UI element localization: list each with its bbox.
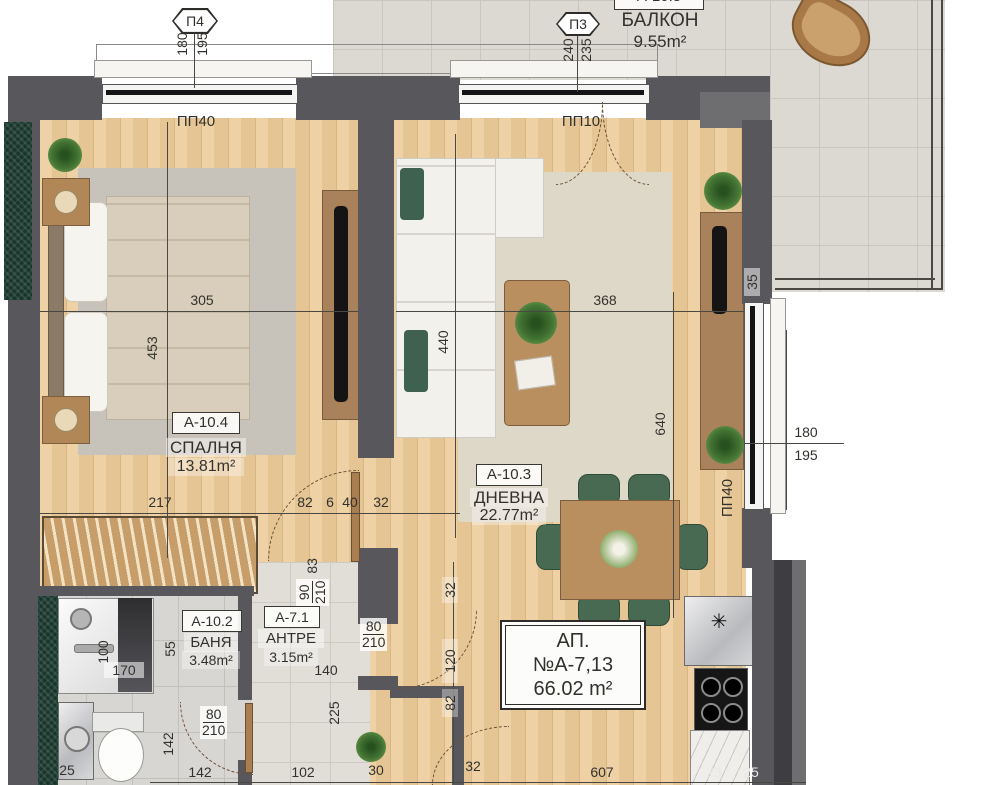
living-window-sill: [450, 60, 658, 78]
bathroom-door-leaf: [245, 703, 253, 773]
dim-hall-door: 80 210: [360, 618, 387, 651]
living-id: А-10.3: [476, 464, 542, 486]
coffee-table-books: [514, 356, 556, 391]
dim-p4-a: 180: [174, 24, 190, 64]
balcony-name: БАЛКОН: [608, 10, 712, 31]
dim-kchain-82: 82: [442, 689, 458, 717]
wall-kitchen-1: [752, 560, 774, 785]
apartment-number: АП. №А-7,13: [514, 629, 632, 677]
wall-kitchen-2: [774, 560, 792, 785]
dim-living-width: 368: [579, 292, 631, 308]
apartment-total-area: 66.02 m²: [514, 677, 632, 701]
bed-headboard: [48, 192, 64, 424]
dim-bottom-25b: 25: [736, 764, 766, 780]
living-plant-bottom-icon: [706, 426, 744, 464]
hall-id: А-7.1: [264, 606, 320, 628]
sink-symbol: ✳: [704, 612, 734, 632]
dim-living-height-left: 440: [435, 320, 451, 364]
dim-shower-l: 170: [104, 662, 144, 678]
bed-duvet: [106, 196, 250, 420]
balcony-railing-bottom-outer: [775, 288, 943, 290]
bedroom-tv: [334, 206, 348, 402]
dim-p3-a: 240: [560, 30, 576, 70]
bedroom-door-fraction: 90 210: [296, 579, 329, 606]
bedroom-door-leaf: [351, 472, 360, 562]
dim-bottom-142: 142: [180, 764, 220, 780]
dim-p4-b: 195: [194, 24, 210, 64]
dim-bath-door: 80 210: [200, 706, 227, 739]
dim-kchain-32: 32: [442, 577, 458, 603]
sofa-pillow-2: [404, 330, 428, 392]
dim-living-height-right: 640: [652, 402, 668, 446]
bath-name: БАНЯ: [184, 633, 238, 652]
dim-chain-82: 82: [291, 494, 319, 510]
bath-area: 3.48m²: [182, 651, 240, 669]
window-label-pp10: ПП10: [555, 114, 607, 130]
bedroom-area: 13.81m²: [168, 458, 244, 476]
dim-kchain-120: 120: [442, 639, 458, 683]
dim-bedroom-height: 453: [144, 326, 160, 370]
washing-machine-door-icon: [64, 726, 90, 752]
nightstand-lamp-bottom: [54, 408, 78, 432]
bedroom-name: СПАЛНЯ: [166, 438, 246, 457]
dim-bottom-32: 32: [458, 758, 488, 774]
living-name: ДНЕВНА: [470, 488, 548, 507]
dim-bottom-102: 102: [283, 764, 323, 780]
apartment-label: АП. №А-7,13 66.02 m²: [500, 620, 646, 710]
window-label-pp40-top: ПП40: [170, 114, 222, 130]
dim-chain-6: 6: [323, 494, 337, 510]
side-window-glass: [750, 306, 755, 504]
side-window-sill: [770, 298, 786, 514]
dim-hall-225: 225: [326, 691, 342, 735]
dim-bath-142: 142: [160, 722, 176, 766]
hall-plant-icon: [356, 732, 386, 762]
floor-plan: ✳: [0, 0, 989, 785]
balcony-railing-right-outer: [941, 0, 943, 288]
dimline-bottom: [150, 782, 806, 783]
dining-flowers-icon: [600, 530, 638, 568]
bedroom-plant-icon: [48, 138, 82, 172]
dim-right-win-b: 195: [784, 447, 828, 463]
bedroom-id: А-10.4: [172, 412, 240, 434]
sofa-pillow-1: [400, 168, 424, 220]
burner-icon: [701, 703, 721, 723]
dim-p3-b: 235: [578, 30, 594, 70]
bedroom-wardrobe: [42, 516, 258, 594]
dim-bottom-30: 30: [362, 762, 390, 778]
dim-chain-32: 32: [368, 494, 394, 510]
wall-hall-stub-top: [358, 548, 398, 608]
wall-kitchen-3: [792, 560, 806, 785]
apartment-label-inner: АП. №А-7,13 66.02 m²: [505, 625, 641, 705]
dimline-living-v2: [673, 292, 674, 618]
wall-bedroom-living: [358, 120, 394, 458]
dim-jamb-83: 83: [304, 558, 320, 574]
bedroom-window-glass: [106, 90, 292, 95]
insulation-left: [4, 122, 32, 300]
bath-id: А-10.2: [182, 610, 242, 632]
burner-icon: [701, 677, 721, 697]
living-tv: [712, 226, 727, 314]
balcony-railing-right: [931, 0, 933, 288]
dim-bottom-23: 23: [700, 764, 728, 780]
hall-area: 3.15m²: [264, 648, 318, 666]
toilet-bowl: [98, 728, 144, 782]
dim-right-win-a: 180: [784, 424, 828, 440]
dimline-right-frac: [744, 443, 844, 444]
window-label-pp40-side: ПП40: [720, 472, 736, 524]
wall-right-mid: [742, 508, 772, 568]
dim-pier-35: 35: [744, 268, 760, 296]
balcony-railing-bottom: [775, 278, 935, 280]
dimline-bedroom-v: [167, 122, 168, 558]
balcony-id: А-10.5: [614, 0, 704, 10]
dimline-chain-h: [40, 513, 460, 514]
dim-bottom-607: 607: [580, 764, 624, 780]
hall-name: АНТРЕ: [258, 629, 324, 648]
dimline-living-v1: [455, 134, 456, 538]
wall-bedroom-south: [40, 586, 254, 596]
shower-head-icon: [70, 608, 92, 630]
living-window-glass: [462, 90, 644, 95]
dimline-right-v: [786, 330, 787, 510]
burner-icon: [723, 703, 743, 723]
coffee-table-plant-icon: [515, 302, 557, 344]
dimline-bedroom-h: [40, 311, 358, 312]
dim-bottom-25a: 25: [52, 762, 82, 778]
dim-chain-40: 40: [338, 494, 362, 510]
kitchen-stove: [694, 668, 748, 732]
balcony-area: 9.55m²: [616, 32, 704, 51]
wall-top-left: [8, 76, 102, 120]
insulation-bath: [38, 596, 58, 785]
dim-bedroom-width: 305: [176, 292, 228, 308]
dimline-living-h: [396, 311, 744, 312]
living-plant-top-icon: [704, 172, 742, 210]
living-area: 22.77m²: [472, 507, 546, 525]
dining-chair: [676, 524, 708, 570]
burner-icon: [723, 677, 743, 697]
dim-gap-55: 55: [162, 631, 178, 667]
wall-top-mid: [296, 76, 460, 120]
dim-wardrobe: 217: [138, 494, 182, 510]
nightstand-lamp-top: [54, 190, 78, 214]
